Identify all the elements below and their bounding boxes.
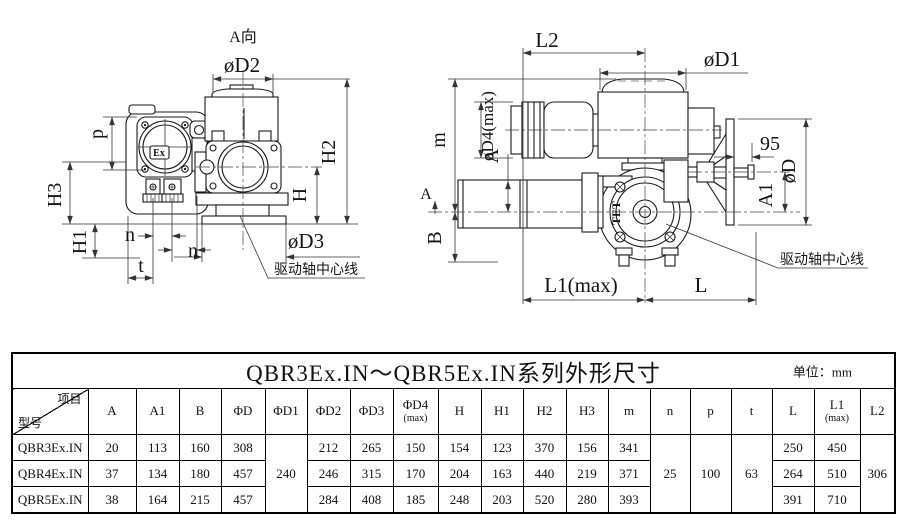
- dim-n2: n: [188, 240, 198, 262]
- dimension-value-cell: 240: [265, 435, 307, 514]
- dimension-value-cell: 457: [221, 461, 265, 487]
- dim-t: t: [138, 255, 144, 277]
- table-title-cell: QBR3Ex.IN～QBR5Ex.IN系列外形尺寸单位：mm: [12, 353, 895, 389]
- dimension-value-cell: 123: [481, 435, 523, 461]
- column-header: ΦD2: [307, 389, 350, 435]
- dimension-value-cell: 164: [136, 487, 179, 514]
- dimension-value-cell: 710: [814, 487, 860, 514]
- catalog-page: .of{fill:#fff;stroke:#1a1a1a;stroke-widt…: [0, 0, 910, 527]
- column-header: m: [608, 389, 650, 435]
- dimension-value-cell: 163: [481, 461, 523, 487]
- dimension-value-cell: 25: [650, 435, 690, 514]
- dim-phiD3: øD3: [288, 229, 324, 253]
- dimension-value-cell: 265: [350, 435, 393, 461]
- dimension-value-cell: 219: [566, 461, 608, 487]
- column-header: L: [772, 389, 814, 435]
- dimension-value-cell: 315: [350, 461, 393, 487]
- dimension-value-cell: 160: [179, 435, 221, 461]
- dimension-value-cell: 371: [608, 461, 650, 487]
- column-header: p: [690, 389, 731, 435]
- dim-L2: L2: [535, 28, 558, 52]
- dimension-table-wrap: QBR3Ex.IN～QBR5Ex.IN系列外形尺寸单位：mm项目型号AA1BΦD…: [11, 352, 896, 514]
- dim-H3: H3: [44, 183, 66, 207]
- dimension-value-cell: 170: [393, 461, 438, 487]
- shaft-centerline-note-left: 驱动轴中心线: [274, 262, 358, 278]
- column-header: t: [731, 389, 772, 435]
- shaft-centerline-note-right: 驱动轴中心线: [780, 252, 864, 268]
- dim-L: L: [695, 273, 708, 297]
- dimension-value-cell: 63: [731, 435, 772, 514]
- dim-phiD2: øD2: [224, 53, 260, 77]
- view-a-label: A向: [229, 28, 257, 46]
- dimension-value-cell: 204: [438, 461, 481, 487]
- dimension-value-cell: 215: [179, 487, 221, 514]
- dim-phiD: øD: [778, 159, 800, 183]
- model-cell: QBR5Ex.IN: [12, 487, 88, 514]
- dimension-value-cell: 370: [523, 435, 566, 461]
- column-header: H: [438, 389, 481, 435]
- dimension-value-cell: 203: [481, 487, 523, 514]
- technical-drawings: .of{fill:#fff;stroke:#1a1a1a;stroke-widt…: [0, 0, 910, 348]
- ex-mark: Ex: [153, 148, 165, 159]
- column-header: ΦD: [221, 389, 265, 435]
- column-header: H2: [523, 389, 566, 435]
- dimension-value-cell: 212: [307, 435, 350, 461]
- dimension-value-cell: 180: [179, 461, 221, 487]
- dimension-value-cell: 450: [814, 435, 860, 461]
- column-header: B: [179, 389, 221, 435]
- dim-A1: A1: [755, 183, 777, 207]
- dim-m: m: [428, 132, 450, 148]
- corner-cell: 项目型号: [12, 389, 88, 435]
- mounting-flange: [196, 193, 288, 205]
- dimension-value-cell: 185: [393, 487, 438, 514]
- dimension-value-cell: 306: [860, 435, 895, 514]
- column-header: H1: [481, 389, 523, 435]
- corner-item-label: 项目: [57, 393, 81, 407]
- control-box: [598, 92, 688, 158]
- column-header: n: [650, 389, 690, 435]
- dim-p: p: [86, 129, 108, 139]
- dim-H2: H2: [318, 140, 340, 164]
- column-header: H3: [566, 389, 608, 435]
- dim-A: A: [481, 148, 503, 163]
- column-header: A: [88, 389, 136, 435]
- dim-n1: n: [125, 224, 135, 246]
- column-header: A1: [136, 389, 179, 435]
- dimension-value-cell: 100: [690, 435, 731, 514]
- dimension-value-cell: 457: [221, 487, 265, 514]
- model-cell: QBR4Ex.IN: [12, 461, 88, 487]
- dimension-value-cell: 20: [88, 435, 136, 461]
- dimension-value-cell: 280: [566, 487, 608, 514]
- right-view: TET L2 øD1 m: [420, 28, 868, 305]
- column-header: ΦD3: [350, 389, 393, 435]
- dimension-value-cell: 264: [772, 461, 814, 487]
- column-header: L2: [860, 389, 895, 435]
- cover-logo: TET: [609, 201, 623, 225]
- table-title: QBR3Ex.IN～QBR5Ex.IN系列外形尺寸: [246, 361, 661, 386]
- dimension-value-cell: 393: [608, 487, 650, 514]
- column-header: ΦD1: [265, 389, 307, 435]
- dimension-value-cell: 150: [393, 435, 438, 461]
- dimension-value-cell: 308: [221, 435, 265, 461]
- dimension-value-cell: 248: [438, 487, 481, 514]
- left-view: Ex: [44, 28, 365, 284]
- dimension-value-cell: 250: [772, 435, 814, 461]
- dim-H: H: [289, 188, 311, 202]
- dimension-value-cell: 134: [136, 461, 179, 487]
- dimension-value-cell: 38: [88, 487, 136, 514]
- dimension-value-cell: 246: [307, 461, 350, 487]
- dim-95: 95: [760, 133, 780, 155]
- dimension-value-cell: 37: [88, 461, 136, 487]
- dimension-value-cell: 391: [772, 487, 814, 514]
- dimension-value-cell: 113: [136, 435, 179, 461]
- view-arrow-label: A: [420, 186, 432, 203]
- column-header: ΦD4(max): [393, 389, 438, 435]
- dim-B: B: [424, 231, 446, 244]
- column-header: L1(max): [814, 389, 860, 435]
- dimension-value-cell: 341: [608, 435, 650, 461]
- unit-label: 单位：mm: [793, 362, 852, 381]
- dim-H1: H1: [69, 230, 91, 254]
- dimension-value-cell: 284: [307, 487, 350, 514]
- dimension-value-cell: 510: [814, 461, 860, 487]
- dimension-value-cell: 408: [350, 487, 393, 514]
- dimension-value-cell: 154: [438, 435, 481, 461]
- model-cell: QBR3Ex.IN: [12, 435, 88, 461]
- dimension-table: QBR3Ex.IN～QBR5Ex.IN系列外形尺寸单位：mm项目型号AA1BΦD…: [11, 352, 896, 514]
- dimension-value-cell: 440: [523, 461, 566, 487]
- dimension-value-cell: 520: [523, 487, 566, 514]
- dim-phiD1: øD1: [704, 47, 740, 71]
- corner-model-label: 型号: [18, 417, 42, 431]
- dim-L1: L1(max): [544, 273, 617, 297]
- dimension-value-cell: 156: [566, 435, 608, 461]
